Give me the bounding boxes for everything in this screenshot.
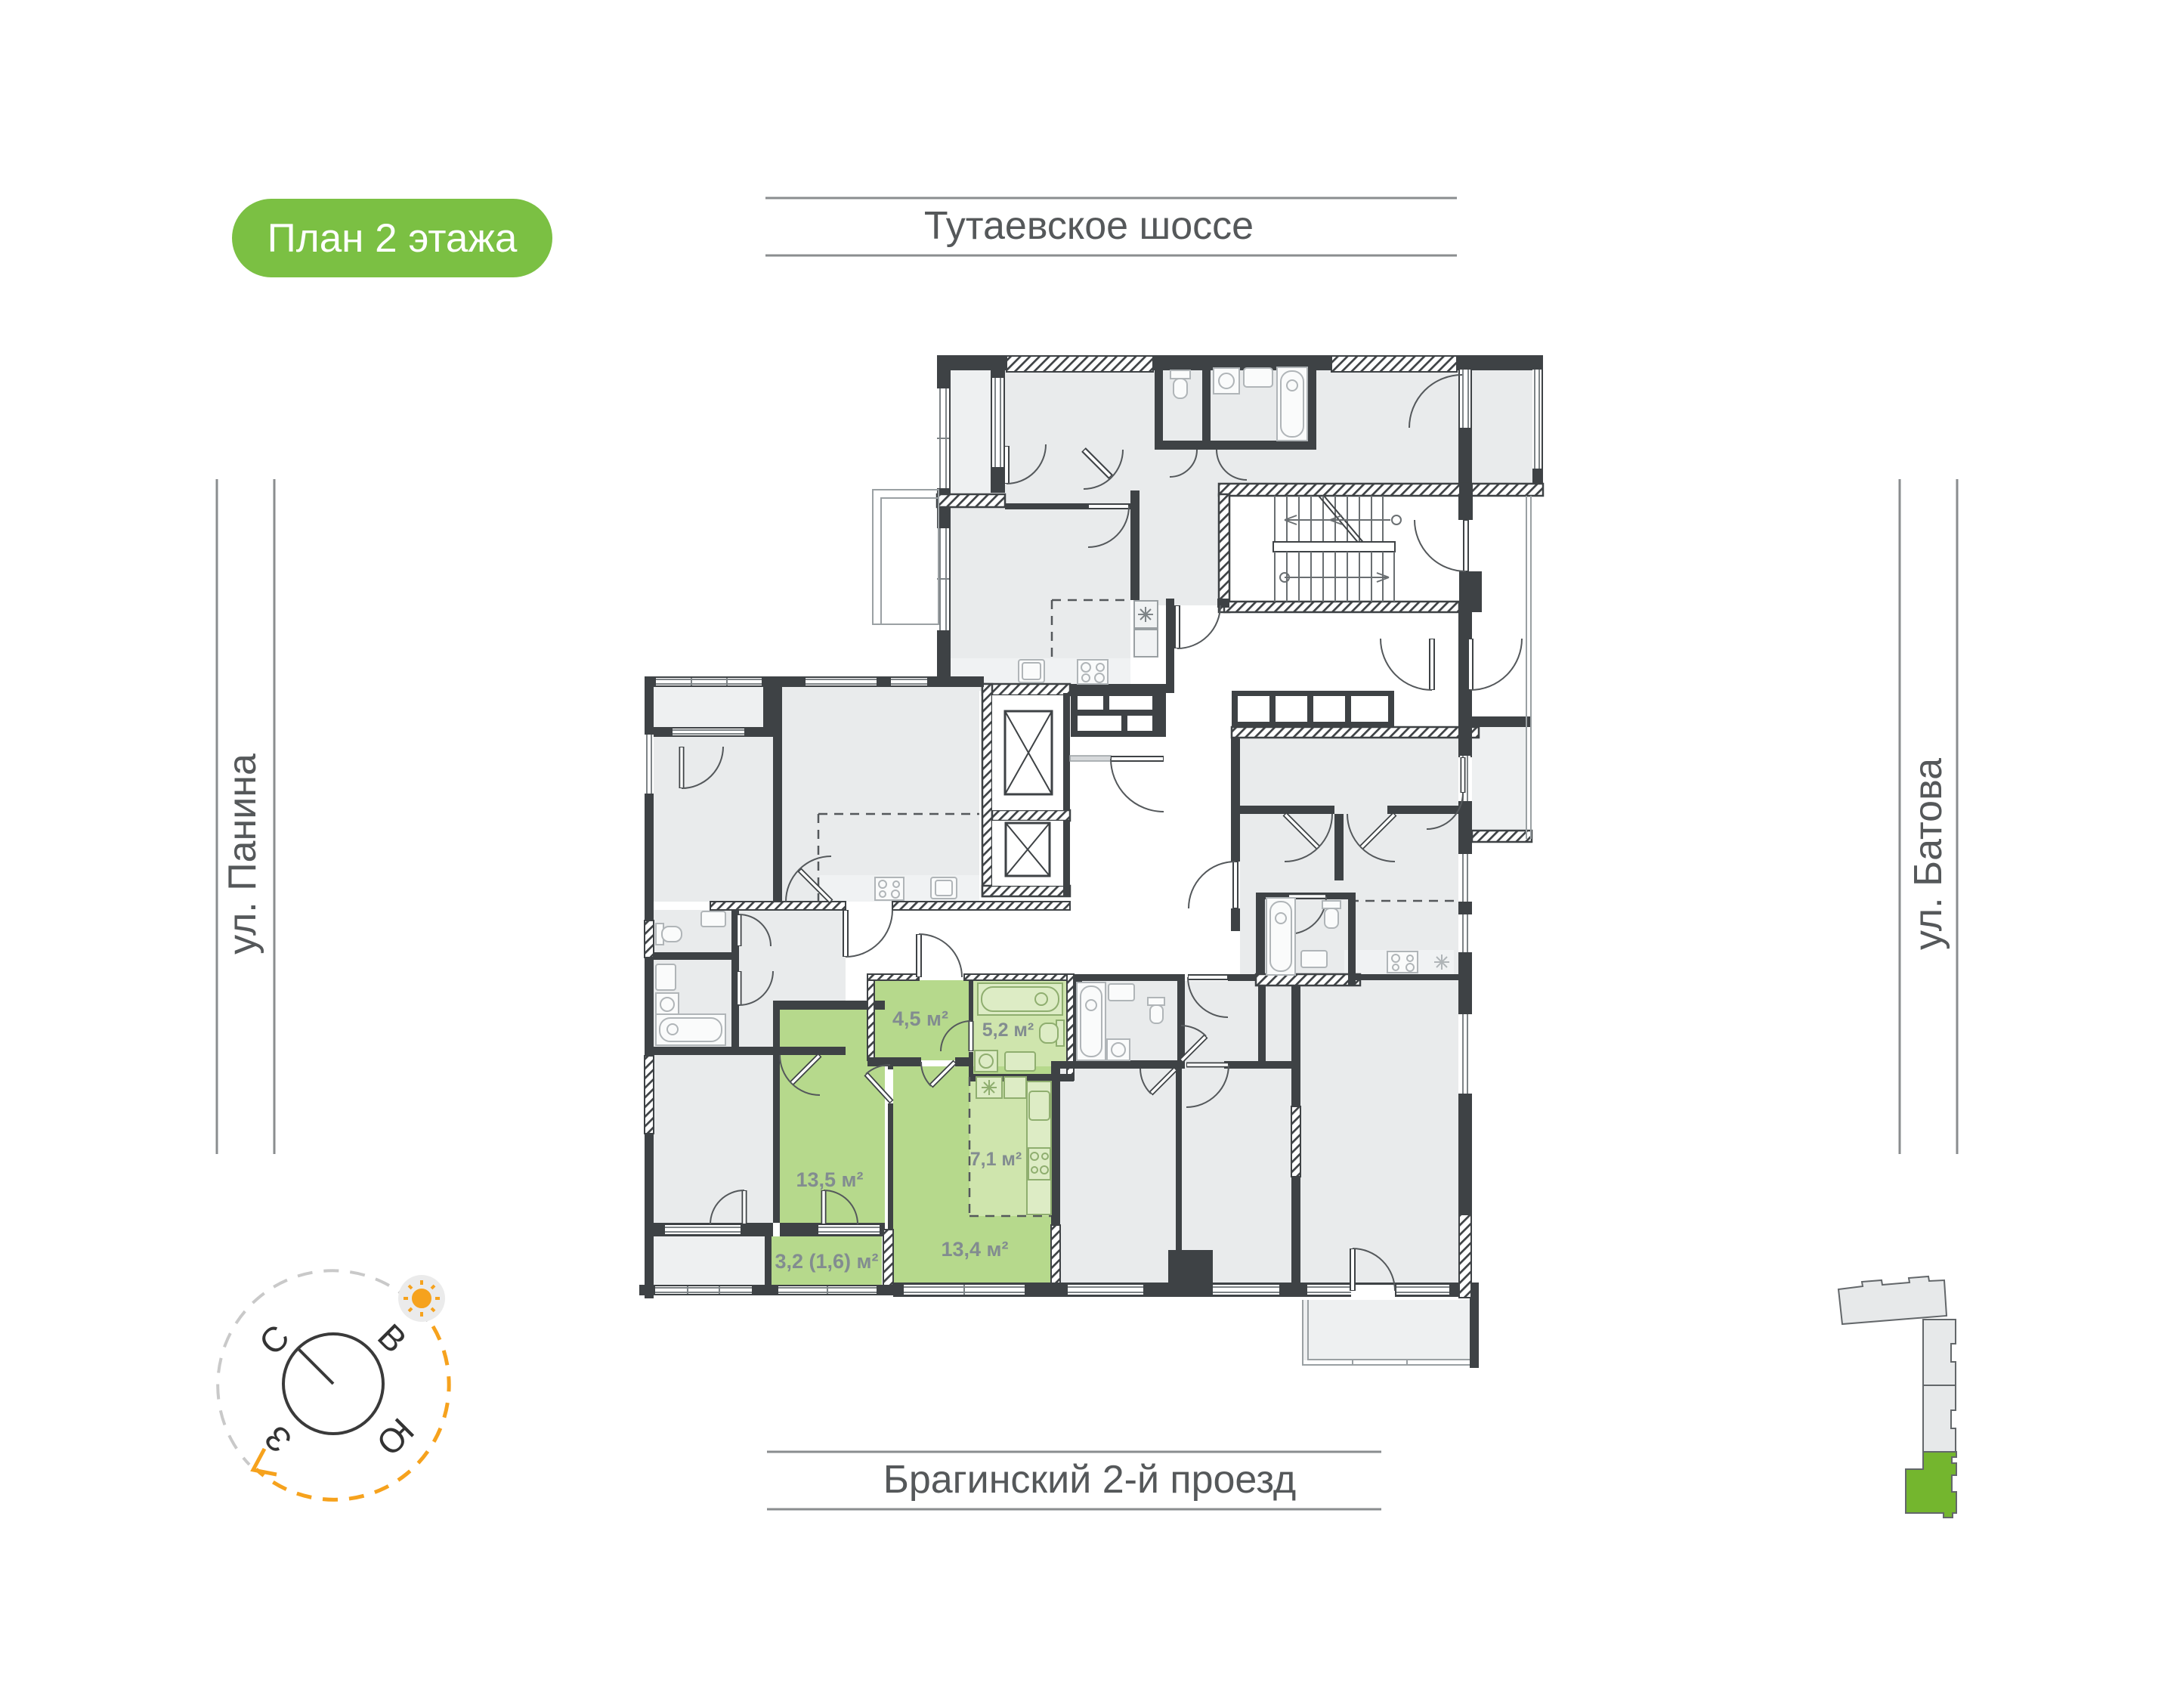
svg-text:Тутаевское шоссе: Тутаевское шоссе	[924, 204, 1254, 248]
svg-text:13,4 м²: 13,4 м²	[941, 1238, 1008, 1261]
svg-text:План 2 этажа: План 2 этажа	[267, 216, 518, 261]
svg-text:3,2 (1,6) м²: 3,2 (1,6) м²	[775, 1250, 878, 1273]
svg-text:5,2 м²: 5,2 м²	[982, 1020, 1034, 1041]
svg-text:Ю: Ю	[369, 1410, 422, 1463]
svg-text:13,5 м²: 13,5 м²	[796, 1168, 863, 1191]
svg-text:В: В	[370, 1316, 414, 1360]
svg-text:ул. Панина: ул. Панина	[221, 753, 264, 955]
svg-text:С: С	[252, 1317, 297, 1363]
svg-text:7,1 м²: 7,1 м²	[970, 1149, 1022, 1170]
svg-text:ул. Батова: ул. Батова	[1906, 758, 1950, 950]
svg-text:Брагинский 2-й проезд: Брагинский 2-й проезд	[883, 1458, 1297, 1502]
svg-text:4,5 м²: 4,5 м²	[892, 1007, 948, 1030]
